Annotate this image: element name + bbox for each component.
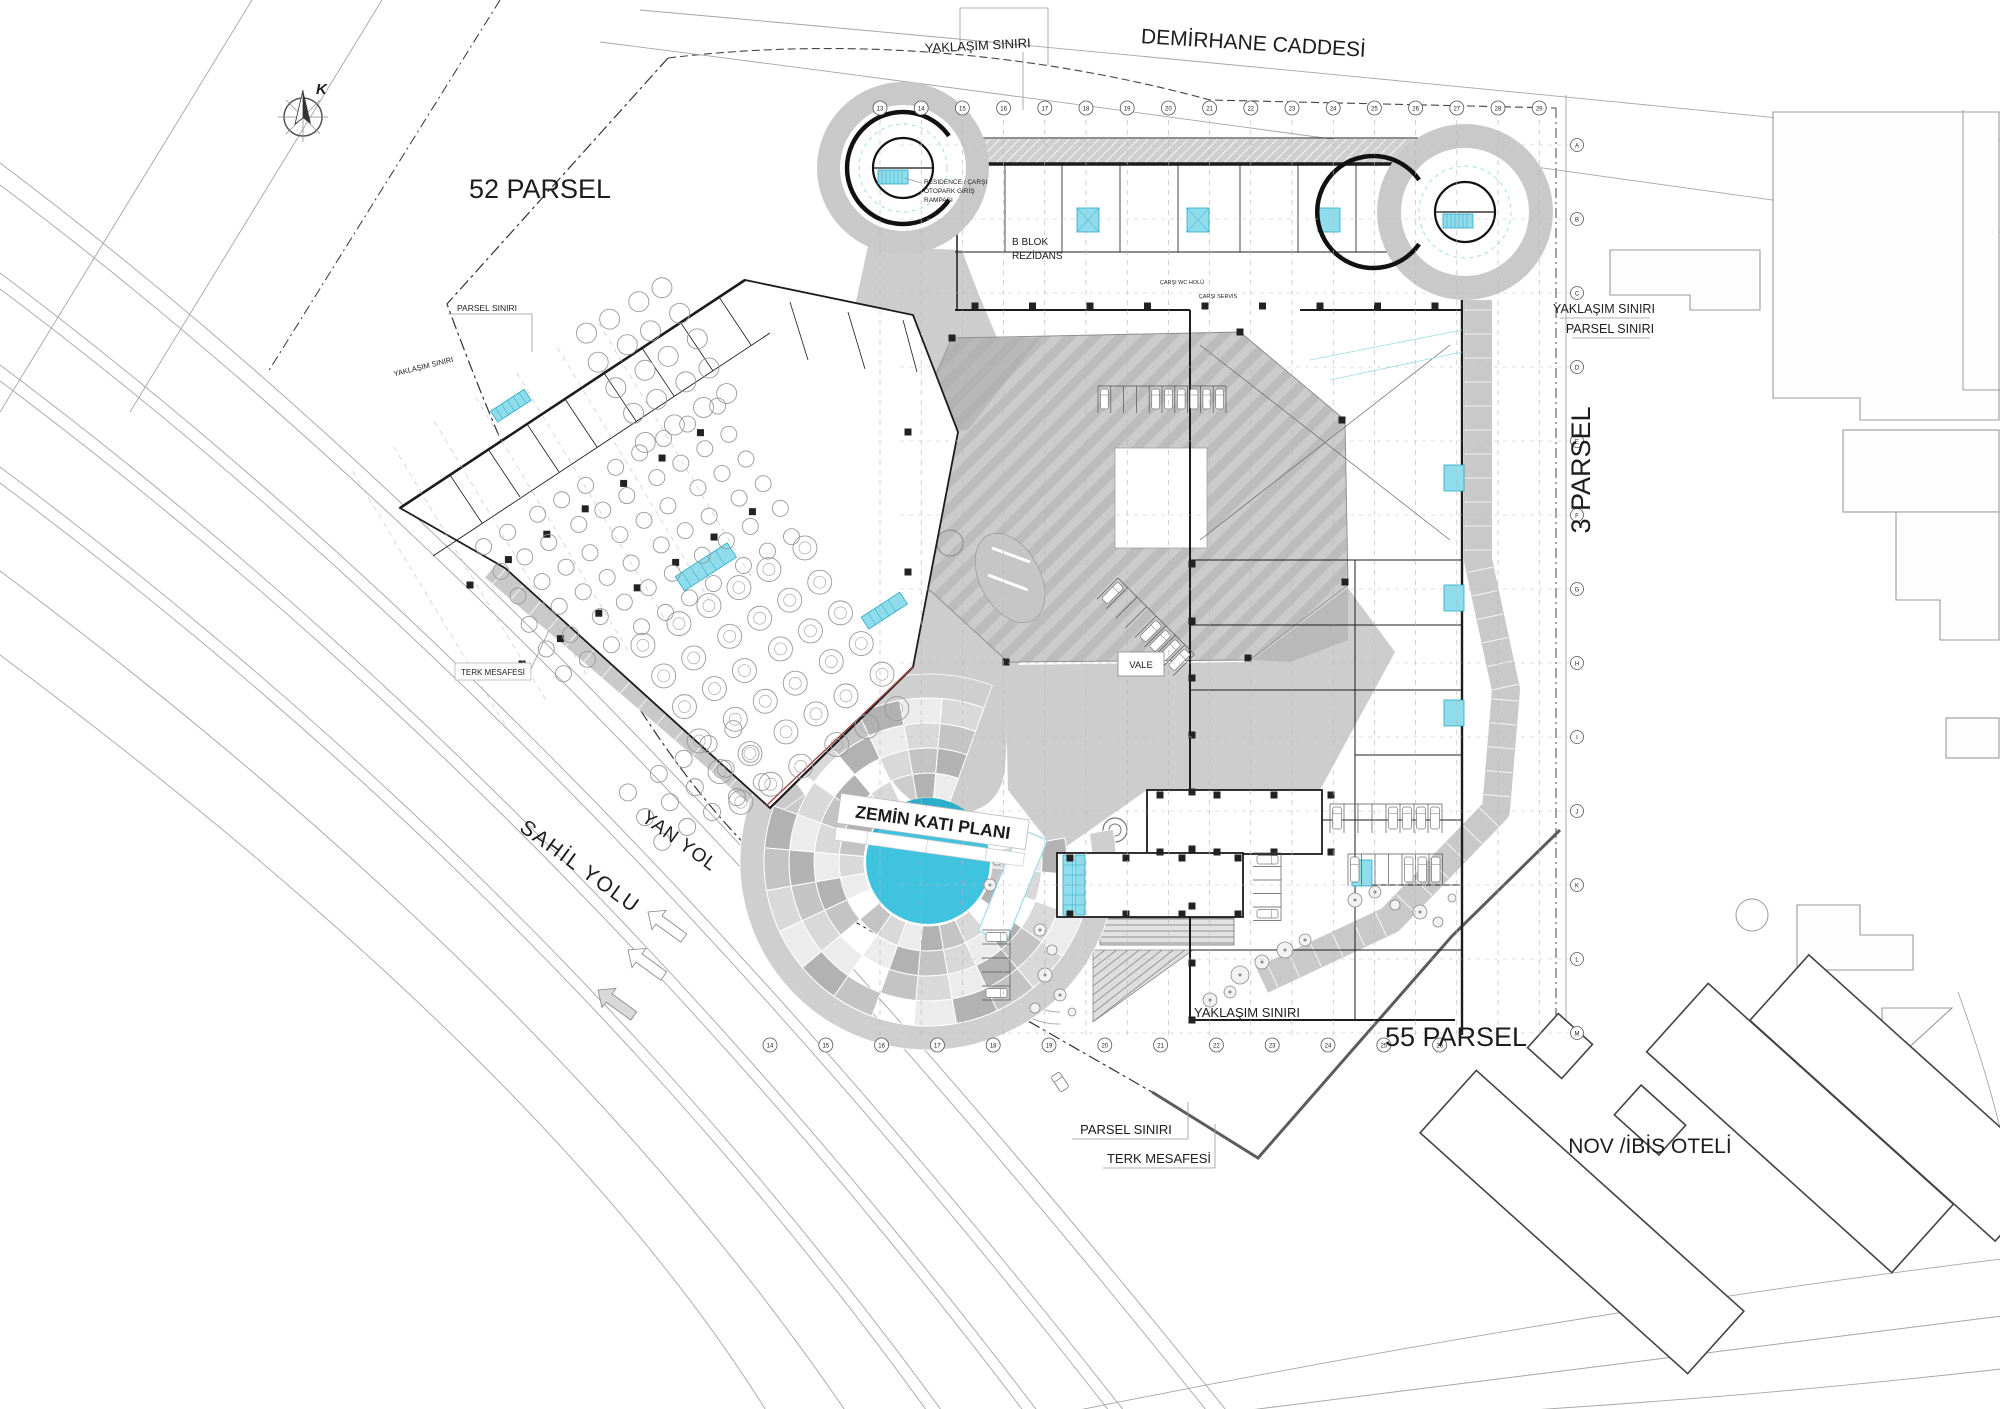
road-edge-line [1005, 1258, 2000, 1409]
approach-limit-label-bottom: YAKLAŞIM SINIRI [1194, 1005, 1300, 1020]
elevator-cores [1077, 208, 1340, 232]
terk-mesafesi-label-bottom: TERK MESAFESİ [1107, 1151, 1211, 1166]
carsi-servis-label: ÇARŞI SERVİS [1199, 293, 1238, 300]
grid-bubble-bottom: 14 [767, 1044, 774, 1050]
grid-bubble-top: 17 [1041, 107, 1048, 113]
leader-lines [448, 314, 532, 352]
grid-bubble-right: B [1575, 217, 1579, 223]
grid-bubble-top: 26 [1412, 107, 1419, 113]
room-partitions [1005, 165, 1414, 252]
grid-bubble-top: 28 [1495, 107, 1502, 113]
grid-bubble-top: 22 [1247, 107, 1254, 113]
approach-boundary-top [668, 49, 1556, 108]
grid-bubble-bottom: 19 [1046, 1044, 1053, 1050]
pavilion-slab [1147, 790, 1322, 854]
road-direction-arrows [591, 902, 691, 1025]
grid-bubble-bottom: 21 [1157, 1044, 1164, 1050]
leader-line [531, 630, 549, 669]
grid-bubble-bottom: 20 [1101, 1044, 1108, 1050]
parcel-55-label: 55 PARSEL [1385, 1022, 1527, 1052]
grid-bubble-right: A [1575, 143, 1579, 149]
grid-bubble-top: 29 [1536, 107, 1543, 113]
parking-row [1330, 804, 1442, 833]
escalator [491, 389, 532, 422]
street-name-sahil-yolu: SAHİL YOLU [515, 816, 644, 918]
zemin-kati-plani-drawing: 1314151617181920212223242526272829141516… [0, 0, 2000, 1409]
context-building [1610, 250, 1760, 310]
car-on-road [1051, 1072, 1069, 1093]
grid-bubble-top: 18 [1083, 107, 1090, 113]
grid-bubble-top: 27 [1453, 107, 1460, 113]
core-stairs [1443, 214, 1473, 228]
grid-bubble-right: H [1575, 661, 1579, 667]
grid-bubble-top: 15 [959, 107, 966, 113]
grid-bubble-bottom: 23 [1269, 1044, 1276, 1050]
b-blok-label: B BLOK [1012, 237, 1048, 248]
core-stairs [878, 170, 908, 184]
grid-bubble-right: M [1575, 1031, 1580, 1037]
north-compass: K [278, 81, 328, 142]
rezidans-label: REZİDANS [1012, 249, 1063, 262]
grid-bubble-top: 21 [1206, 107, 1213, 113]
canopy-hatch-band [955, 139, 1448, 163]
hotel-label: NOV /İBİS OTELİ [1568, 1135, 1731, 1158]
terrace-steps [1093, 950, 1193, 1022]
grid-bubble-bottom: 15 [822, 1044, 829, 1050]
site-plan-canvas: 1314151617181920212223242526272829141516… [0, 0, 2000, 1409]
grid-bubble-right: C [1575, 291, 1580, 297]
vale-label: VALE [1129, 660, 1153, 671]
grid-bubble-right: G [1575, 587, 1580, 593]
parking-row [1253, 853, 1281, 921]
context-buildings-layer [1610, 110, 2000, 1072]
direction-arrow [641, 902, 691, 947]
grid-bubble-top: 13 [877, 107, 884, 113]
stairs [1100, 918, 1234, 945]
parcel-boundary-label-right: PARSEL SINIRI [1566, 322, 1654, 336]
north-label: K [316, 81, 328, 98]
grid-bubble-top: 19 [1124, 107, 1131, 113]
direction-arrow [591, 980, 641, 1025]
terk-mesafesi-label-left: TERK MESAFESİ [461, 668, 525, 677]
approach-limit-label-top: YAKLAŞIM SINIRI [924, 35, 1031, 56]
courtyard-inner-court [1115, 448, 1207, 548]
road-edge-line [0, 0, 252, 412]
parcel-52-label: 52 PARSEL [469, 174, 611, 204]
grid-bubble-right: K [1575, 883, 1579, 889]
road-edge-line [1130, 1315, 2000, 1409]
street-name-demirhane: DEMİRHANE CADDESİ [1140, 25, 1366, 62]
cyan-guide-lines [1310, 330, 1462, 380]
approach-limit-label-right: YAKLAŞIM SINIRI [1553, 302, 1655, 316]
street-name-yan-yol: YAN YOL [638, 807, 721, 875]
grid-bubble-bottom: 18 [990, 1044, 997, 1050]
ramp-note-line1: RESIDENCE / ÇARŞI [924, 179, 987, 186]
approach-limit-label-small: YAKLAŞIM SINIRI [393, 355, 455, 379]
road-curve [0, 640, 775, 1409]
ramp-note-line2: OTOPARK GİRİŞ [924, 186, 975, 195]
hotel-building-block [1420, 1070, 1744, 1373]
context-building [1843, 430, 1999, 512]
grid-bubble-top: 23 [1289, 107, 1296, 113]
grid-bubble-top: 20 [1165, 107, 1172, 113]
context-tree [1736, 899, 1768, 931]
grid-bubble-right: D [1575, 365, 1580, 371]
grid-bubble-bottom: 22 [1213, 1044, 1220, 1050]
parcel-boundary-label-bottom: PARSEL SINIRI [1080, 1122, 1172, 1137]
grid-bubble-bottom: 17 [934, 1044, 941, 1050]
context-building [1896, 512, 1999, 640]
carsi-wc-label: ÇARŞI WC HOLÜ [1160, 279, 1204, 286]
grid-bubble-top: 16 [1000, 107, 1007, 113]
grid-bubble-bottom: 24 [1325, 1044, 1332, 1050]
grid-bubble-top: 25 [1371, 107, 1378, 113]
grid-bubble-top: 14 [918, 107, 925, 113]
context-building [1773, 112, 1999, 420]
context-building [1946, 718, 1999, 758]
parcel-boundary-line [268, 0, 500, 372]
parcel-boundary-label-small: PARSEL SINIRI [457, 303, 517, 313]
hotel-building-block [1528, 1014, 1593, 1079]
road-edge-line [130, 0, 382, 412]
parcel-3-label: 3 PARSEL [1566, 406, 1596, 533]
ramp-note-line3: RAMPASI [924, 197, 953, 204]
grid-bubble-bottom: 16 [878, 1044, 885, 1050]
grid-bubble-top: 24 [1330, 107, 1337, 113]
grid-bubble-right: J [1576, 809, 1579, 815]
road-edge-line [1245, 1368, 2000, 1409]
